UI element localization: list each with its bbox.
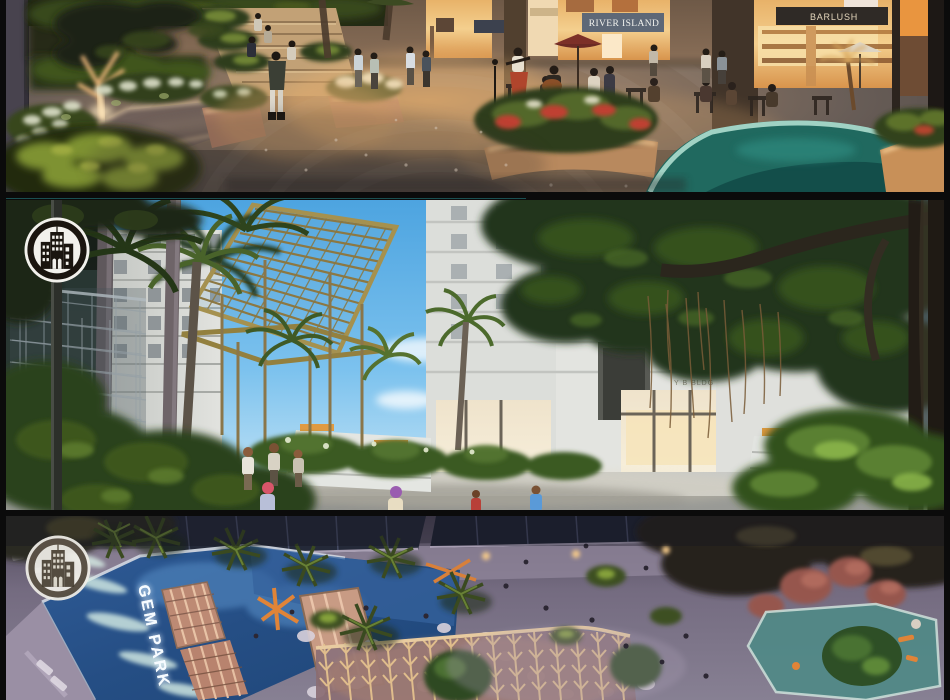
- svg-text:BARLUSH: BARLUSH: [810, 12, 858, 22]
- svg-text:RIVER ISLAND: RIVER ISLAND: [589, 19, 660, 29]
